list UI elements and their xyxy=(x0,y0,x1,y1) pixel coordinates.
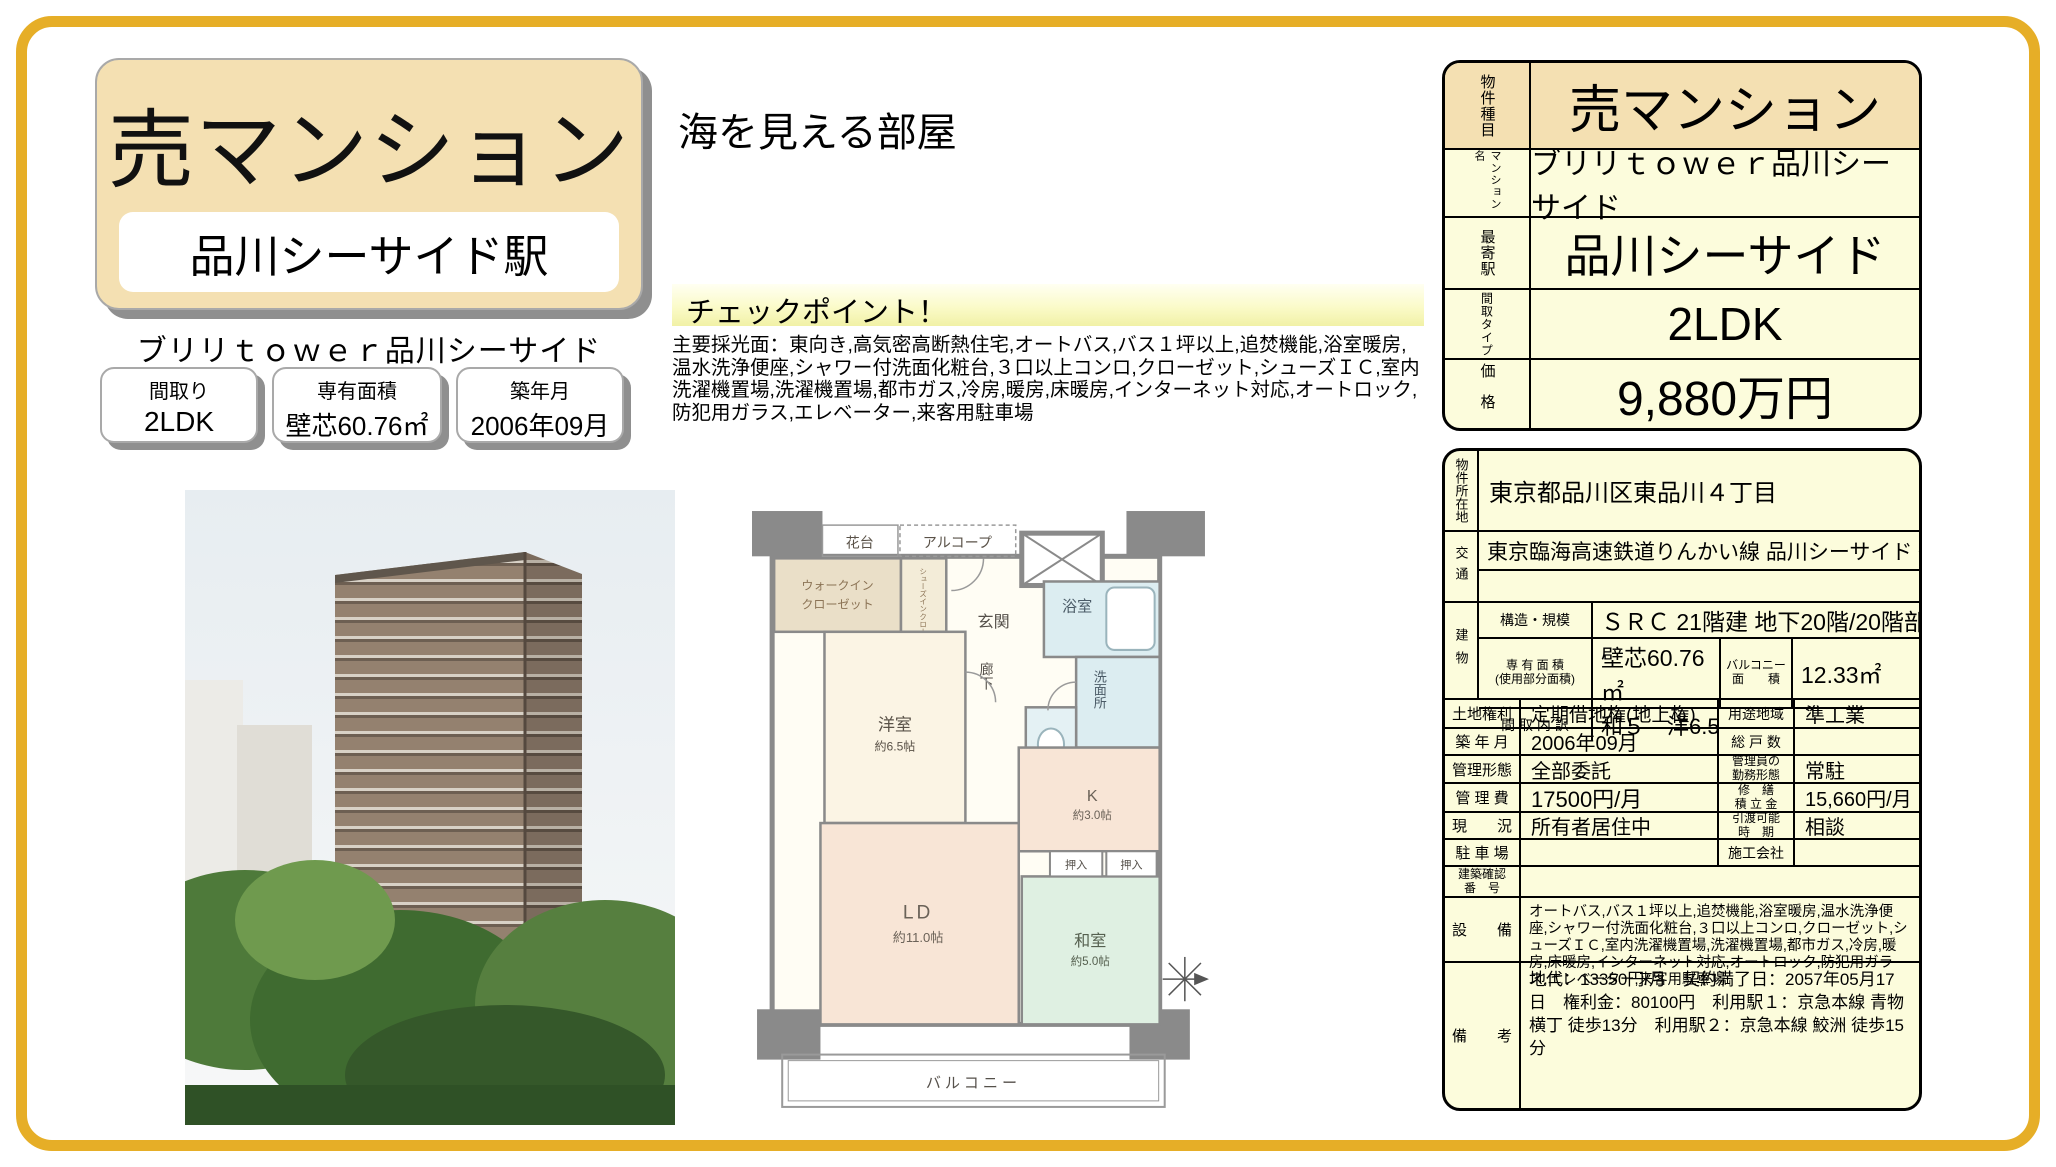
checkpoint-title: チェックポイント！ xyxy=(672,284,1424,326)
row-label: 物件種目 xyxy=(1445,63,1529,148)
pair-value2: 常駐 xyxy=(1793,756,1919,782)
pair-value2: 準工業 xyxy=(1793,700,1919,727)
plan-bathtub xyxy=(1106,588,1154,650)
pair-label1: 土地権利 xyxy=(1445,700,1519,727)
plan-label-hanadai: 花台 xyxy=(846,534,874,550)
stat-box-area: 専有面積 壁芯60.76㎡ xyxy=(272,367,442,443)
row-label: 物件所在地 xyxy=(1445,451,1477,530)
stat-value: 2LDK xyxy=(102,406,256,438)
stat-label: 築年月 xyxy=(458,375,622,404)
pair-label1: 築 年 月 xyxy=(1445,729,1519,754)
checkpoint-body: 主要採光面：東向き,高気密高断熱住宅,オートバス,バス１坪以上,追焚機能,浴室暖… xyxy=(672,334,1424,424)
pair-value1 xyxy=(1519,840,1717,865)
plan-label-western-size: 約6.5帖 xyxy=(874,739,915,754)
row-label: 備 考 xyxy=(1445,963,1519,1108)
access-line2 xyxy=(1479,569,1922,601)
row-value: 品川シーサイド xyxy=(1529,218,1919,288)
station-name: 品川シーサイド駅 xyxy=(189,220,548,285)
plan-label-genkan: 玄関 xyxy=(977,613,1009,631)
plan-label-closet: 押入 xyxy=(1065,857,1087,871)
access-line1: 東京臨海高速鉄道りんかい線 品川シーサイド 徒歩1分 xyxy=(1479,532,1922,569)
compass-icon xyxy=(1163,957,1207,1001)
sub-label: 構造・規模 xyxy=(1479,603,1591,637)
property-type-box: 売マンション 品川シーサイド駅 xyxy=(95,58,643,310)
building-subrows: 構造・規模 ＳＲＣ 21階建 地下20階/20階部分 専 有 面 積 (使用部分… xyxy=(1477,603,1922,698)
row-value: オートバス,バス１坪以上,追焚機能,浴室暖房,温水洗浄便座,シャワー付洗面化粧台… xyxy=(1519,898,1919,961)
plan-room-wic xyxy=(774,558,901,631)
row-value: 売マンション xyxy=(1529,63,1919,148)
building-photo xyxy=(185,490,675,1125)
detail-table: 物件所在地 東京都品川区東品川４丁目 交通 東京臨海高速鉄道りんかい線 品川シー… xyxy=(1442,448,1922,1111)
flyer-page: 売マンション 品川シーサイド駅 ブリリｔｏｗｅｒ品川シーサイド 間取り 2LDK… xyxy=(0,0,2056,1167)
pair-value1: 定期借地権(地上権) xyxy=(1519,700,1717,727)
row-value: 9,880万円 xyxy=(1529,360,1919,428)
pair-value2: 15,660円/月 xyxy=(1793,784,1919,811)
plan-label-wic: ウォークイン xyxy=(801,579,873,593)
plan-label-japanese-size: 約5.0帖 xyxy=(1071,954,1111,968)
balcony-label: バルコニー 面 積 xyxy=(1719,639,1791,707)
row-value: 2LDK xyxy=(1529,290,1919,358)
building-structure-row: 構造・規模 ＳＲＣ 21階建 地下20階/20階部分 xyxy=(1479,603,1922,637)
plan-label-closet: 押入 xyxy=(1120,857,1142,871)
pair-label1: 駐 車 場 xyxy=(1445,840,1519,865)
table-row-pair: 管理形態 全部委託 管理員の 勤務形態 常駐 xyxy=(1445,754,1919,782)
table-row-access: 交通 東京臨海高速鉄道りんかい線 品川シーサイド 徒歩1分 xyxy=(1445,530,1919,601)
plan-label-balcony: バルコニー xyxy=(926,1075,1021,1092)
row-label: 設 備 xyxy=(1445,898,1519,961)
row-label: 建築確認 番 号 xyxy=(1445,867,1519,896)
sub-label: 専 有 面 積 (使用部分面積) xyxy=(1479,639,1591,707)
table-row-pair: 現 況 所有者居住中 引渡可能 時 期 相談 xyxy=(1445,811,1919,838)
building-area-row: 専 有 面 積 (使用部分面積) 壁芯60.76㎡ バルコニー 面 積 12.3… xyxy=(1479,637,1922,707)
table-row-building: 建物 構造・規模 ＳＲＣ 21階建 地下20階/20階部分 専 有 面 積 (使… xyxy=(1445,601,1919,698)
row-label: 交通 xyxy=(1445,532,1477,601)
plan-label-kitchen-size: 約3.0帖 xyxy=(1073,808,1113,822)
table-row-confirmation: 建築確認 番 号 xyxy=(1445,865,1919,896)
table-row-pair: 築 年 月 2006年09月 総 戸 数 xyxy=(1445,727,1919,754)
pair-label2: 施工会社 xyxy=(1717,840,1793,865)
stat-value: 2006年09月 xyxy=(458,406,622,443)
plan-label-living: LD xyxy=(903,903,933,924)
plan-column xyxy=(757,1009,820,1059)
plan-column xyxy=(752,511,822,556)
sub-value: 壁芯60.76㎡ xyxy=(1591,639,1719,707)
pair-label2: 管理員の 勤務形態 xyxy=(1717,756,1793,782)
row-label: 建物 xyxy=(1445,603,1477,698)
photo-ground xyxy=(185,1085,675,1125)
row-label: 価格 xyxy=(1445,360,1529,428)
pair-label2: 修 繕 積 立 金 xyxy=(1717,784,1793,811)
station-box: 品川シーサイド駅 xyxy=(119,212,619,292)
pair-value1: 所有者居住中 xyxy=(1519,813,1717,838)
table-row: 間取タイプ 2LDK xyxy=(1445,288,1919,358)
table-row: 価格 9,880万円 xyxy=(1445,358,1919,428)
row-label: 間取タイプ xyxy=(1445,290,1529,358)
row-label: 最寄駅 xyxy=(1445,218,1529,288)
pair-label1: 現 況 xyxy=(1445,813,1519,838)
plan-label-living-size: 約11.0帖 xyxy=(893,930,944,945)
table-row: マンション名 ブリリｔｏｗｅｒ品川シーサイド xyxy=(1445,148,1919,216)
pair-value1: 全部委託 xyxy=(1519,756,1717,782)
pair-value2 xyxy=(1793,729,1919,754)
property-type-title: 売マンション xyxy=(97,80,641,205)
plan-label-japanese: 和室 xyxy=(1074,932,1106,950)
row-value xyxy=(1519,867,1919,896)
pair-label1: 管理形態 xyxy=(1445,756,1519,782)
pair-label1: 管 理 費 xyxy=(1445,784,1519,811)
row-value: 東京都品川区東品川４丁目 xyxy=(1477,451,1919,530)
table-row-remarks: 備 考 地代：13350円/月 契約満了日：2057年05月17日 権利金：80… xyxy=(1445,961,1919,1108)
plan-column xyxy=(1126,511,1205,556)
building-name: ブリリｔｏｗｅｒ品川シーサイド xyxy=(95,326,643,370)
table-row-address: 物件所在地 東京都品川区東品川４丁目 xyxy=(1445,451,1919,530)
balcony-value: 12.33㎡ xyxy=(1791,639,1922,707)
plan-room-japanese xyxy=(1022,876,1160,1024)
plan-label-wic: クローゼット xyxy=(801,598,873,612)
plan-room-wash xyxy=(1076,657,1160,748)
table-row-pair: 駐 車 場 施工会社 xyxy=(1445,838,1919,865)
pair-label2: 総 戸 数 xyxy=(1717,729,1793,754)
table-row: 最寄駅 品川シーサイド xyxy=(1445,216,1919,288)
sub-value: ＳＲＣ 21階建 地下20階/20階部分 xyxy=(1591,603,1922,637)
table-row: 物件種目 売マンション xyxy=(1445,63,1919,148)
headline: 海を見える部屋 xyxy=(678,100,957,158)
stat-box-built: 築年月 2006年09月 xyxy=(456,367,624,443)
pair-value1: 17500円/月 xyxy=(1519,784,1717,811)
stat-label: 専有面積 xyxy=(274,375,440,404)
floor-plan: 花台 アルコープ ウォークイン クローゼット シューズインクローゼット 玄関 浴… xyxy=(752,510,1210,1116)
row-value: 地代：13350円/月 契約満了日：2057年05月17日 権利金：80100円… xyxy=(1519,963,1919,1108)
pair-label2: 引渡可能 時 期 xyxy=(1717,813,1793,838)
plan-label-kitchen: K xyxy=(1087,787,1098,805)
row-value: ブリリｔｏｗｅｒ品川シーサイド xyxy=(1529,150,1919,216)
table-row-facilities: 設 備 オートバス,バス１坪以上,追焚機能,浴室暖房,温水洗浄便座,シャワー付洗… xyxy=(1445,896,1919,961)
plan-label-alcove: アルコープ xyxy=(923,534,992,550)
stat-box-layout: 間取り 2LDK xyxy=(100,367,258,443)
plan-label-wash: 洗面所 xyxy=(1092,670,1107,710)
plan-label-bath: 浴室 xyxy=(1062,599,1092,616)
stat-value: 壁芯60.76㎡ xyxy=(274,406,440,443)
pair-value2 xyxy=(1793,840,1919,865)
photo-tree xyxy=(235,860,395,980)
access-lines: 東京臨海高速鉄道りんかい線 品川シーサイド 徒歩1分 xyxy=(1477,532,1922,601)
pair-value2: 相談 xyxy=(1793,813,1919,838)
summary-table: 物件種目 売マンション マンション名 ブリリｔｏｗｅｒ品川シーサイド 最寄駅 品… xyxy=(1442,60,1922,431)
row-label: マンション名 xyxy=(1445,150,1529,216)
pair-label2: 用途地域 xyxy=(1717,700,1793,727)
plan-label-western: 洋室 xyxy=(878,715,912,734)
table-row-pair: 管 理 費 17500円/月 修 繕 積 立 金 15,660円/月 xyxy=(1445,782,1919,811)
table-row-pair: 土地権利 定期借地権(地上権) 用途地域 準工業 xyxy=(1445,698,1919,727)
stat-label: 間取り xyxy=(102,375,256,404)
pair-value1: 2006年09月 xyxy=(1519,729,1717,754)
plan-room-living xyxy=(820,823,1018,1024)
